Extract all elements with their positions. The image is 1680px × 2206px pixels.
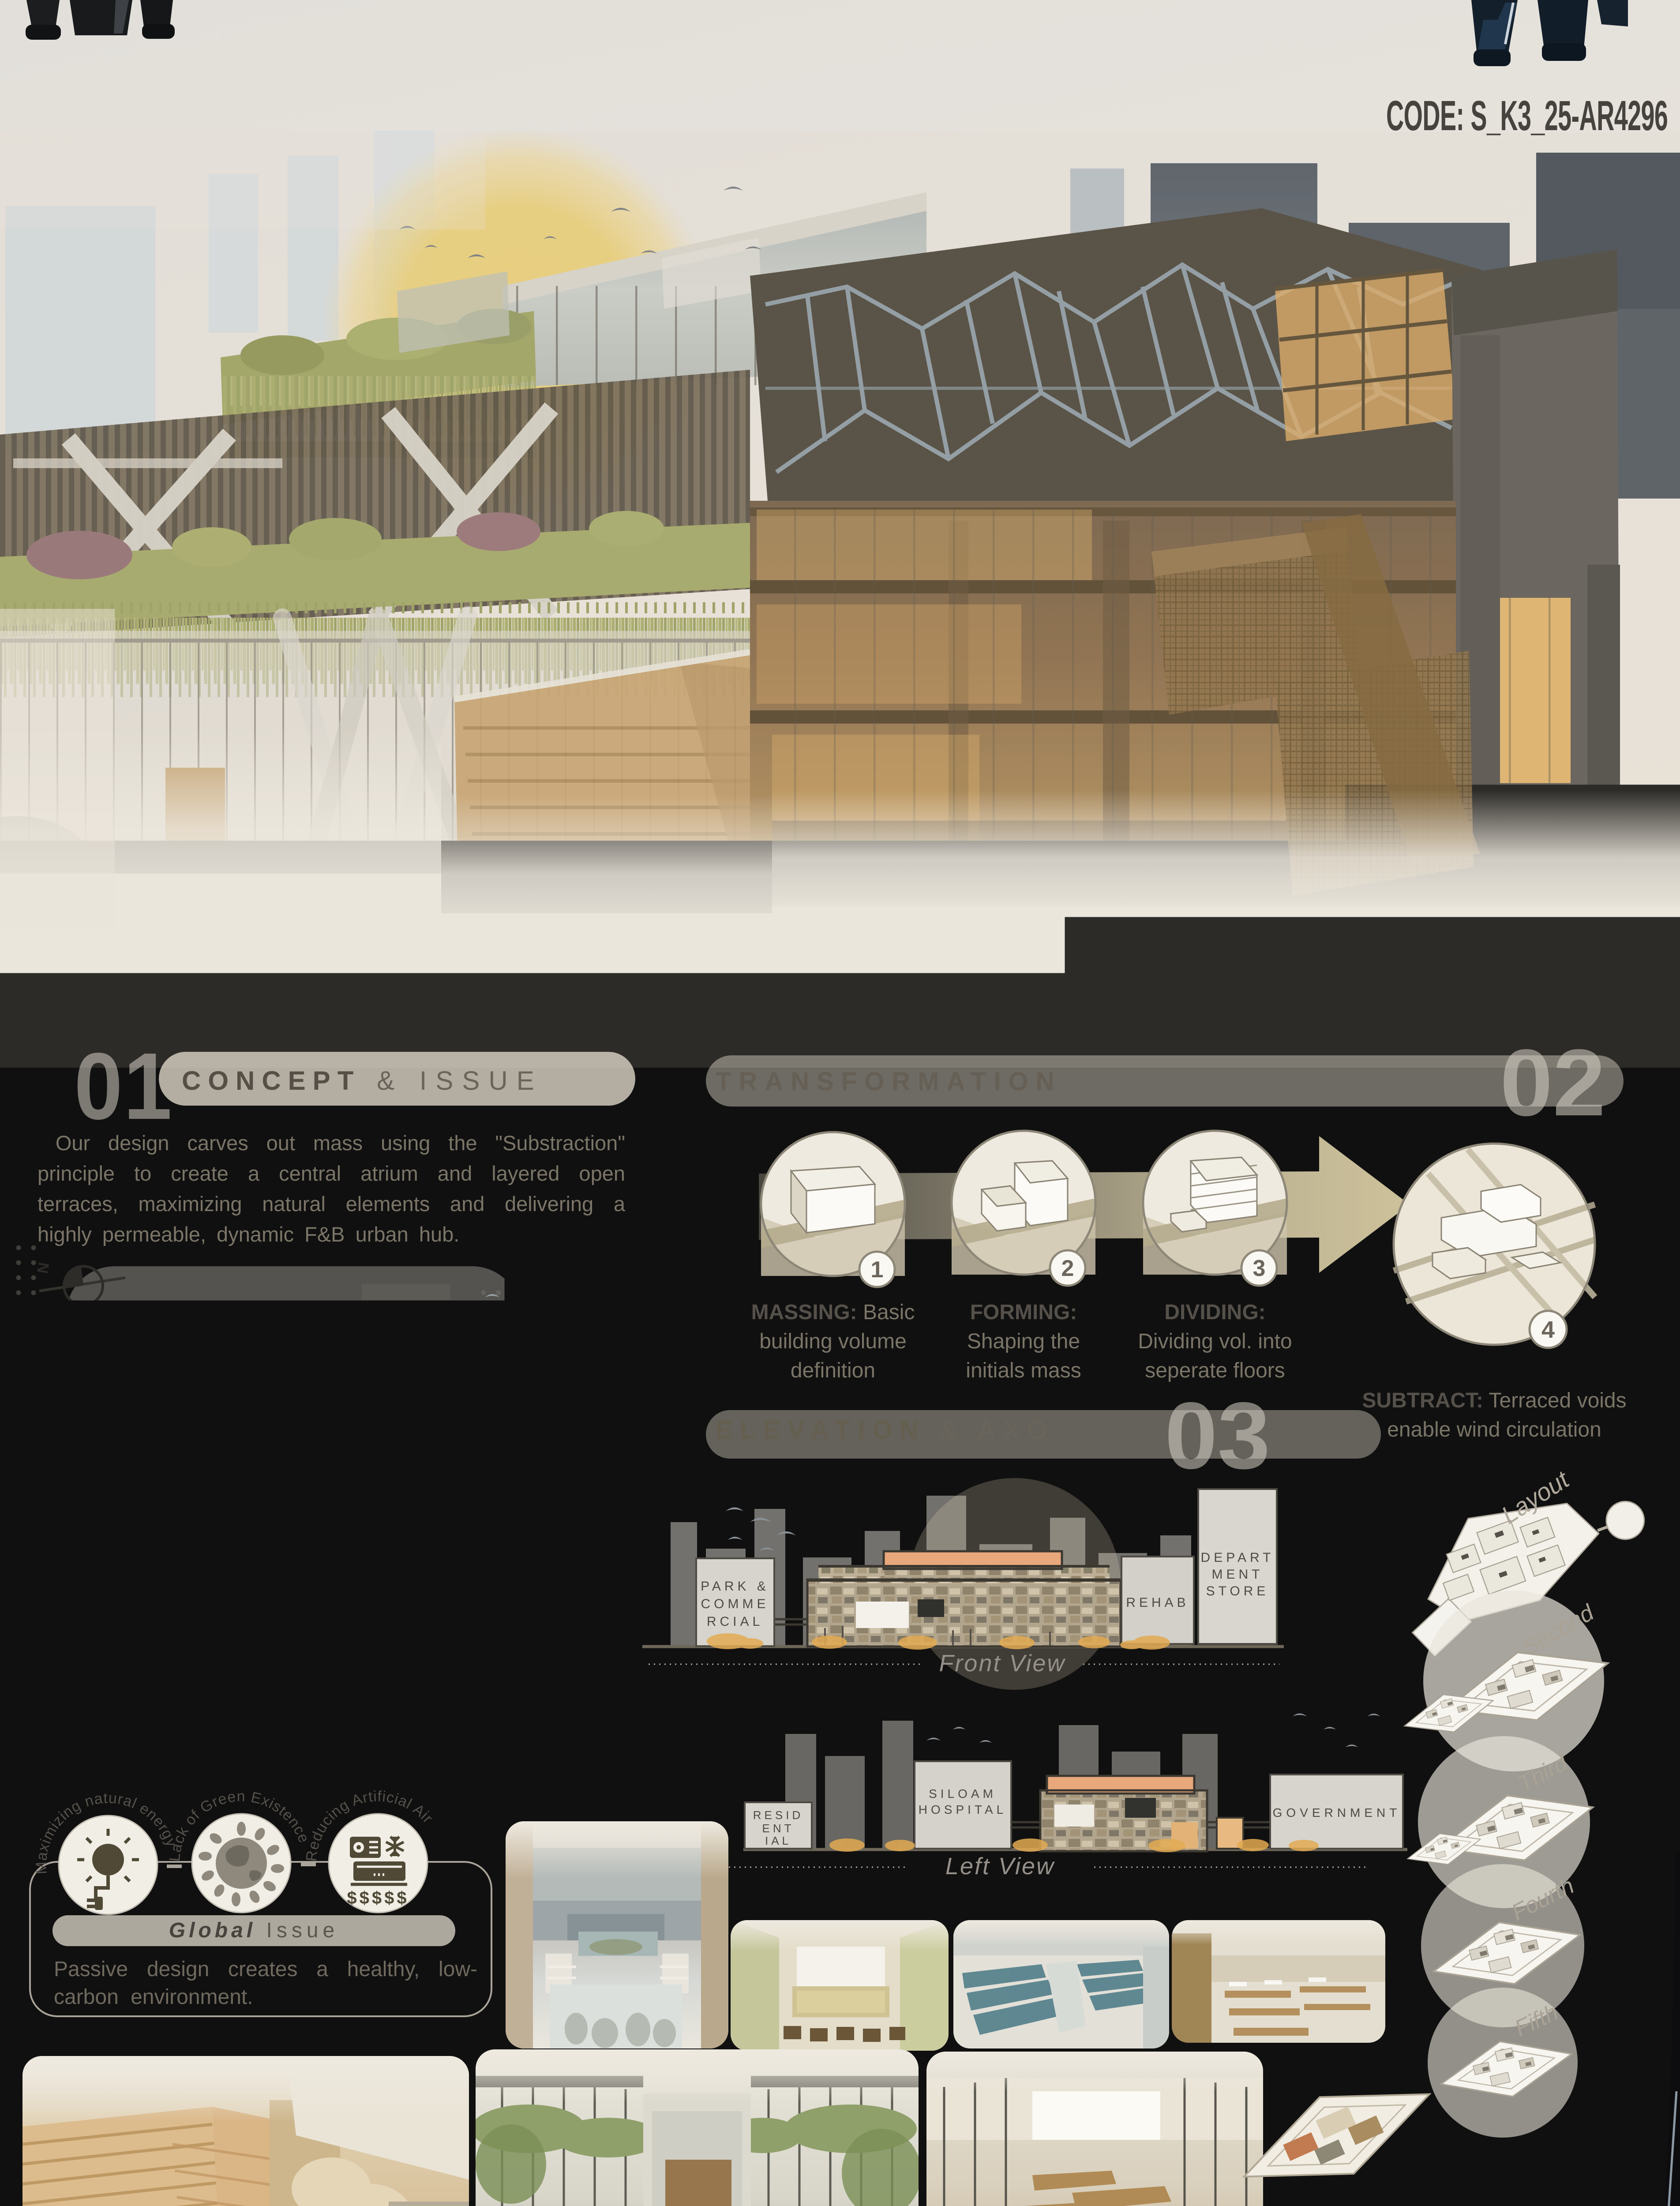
svg-text:4: 4 bbox=[1541, 1317, 1555, 1343]
svg-text:2: 2 bbox=[281, 1527, 292, 1549]
svg-text:REHAB: REHAB bbox=[1126, 1595, 1189, 1610]
svg-text:4: 4 bbox=[319, 1514, 330, 1535]
svg-text:SILOAM: SILOAM bbox=[929, 1787, 997, 1801]
svg-text:MENT: MENT bbox=[1212, 1567, 1264, 1582]
svg-text:2: 2 bbox=[157, 1483, 168, 1504]
svg-text:2: 2 bbox=[1061, 1256, 1074, 1281]
svg-text:PARK &: PARK & bbox=[701, 1579, 769, 1594]
svg-text:STORE: STORE bbox=[1206, 1584, 1269, 1598]
svg-text:3: 3 bbox=[171, 1339, 181, 1360]
svg-text:1: 1 bbox=[871, 1257, 884, 1283]
svg-text:DEPART: DEPART bbox=[1201, 1550, 1275, 1565]
svg-text:COMME: COMME bbox=[701, 1597, 769, 1611]
svg-text:N: N bbox=[34, 1261, 52, 1275]
svg-text:1: 1 bbox=[263, 1396, 274, 1418]
svg-text:3: 3 bbox=[1253, 1256, 1266, 1281]
svg-text:RCIAL: RCIAL bbox=[707, 1614, 763, 1629]
svg-text:2: 2 bbox=[131, 1407, 141, 1428]
svg-text:Front View: Front View bbox=[939, 1650, 1065, 1677]
